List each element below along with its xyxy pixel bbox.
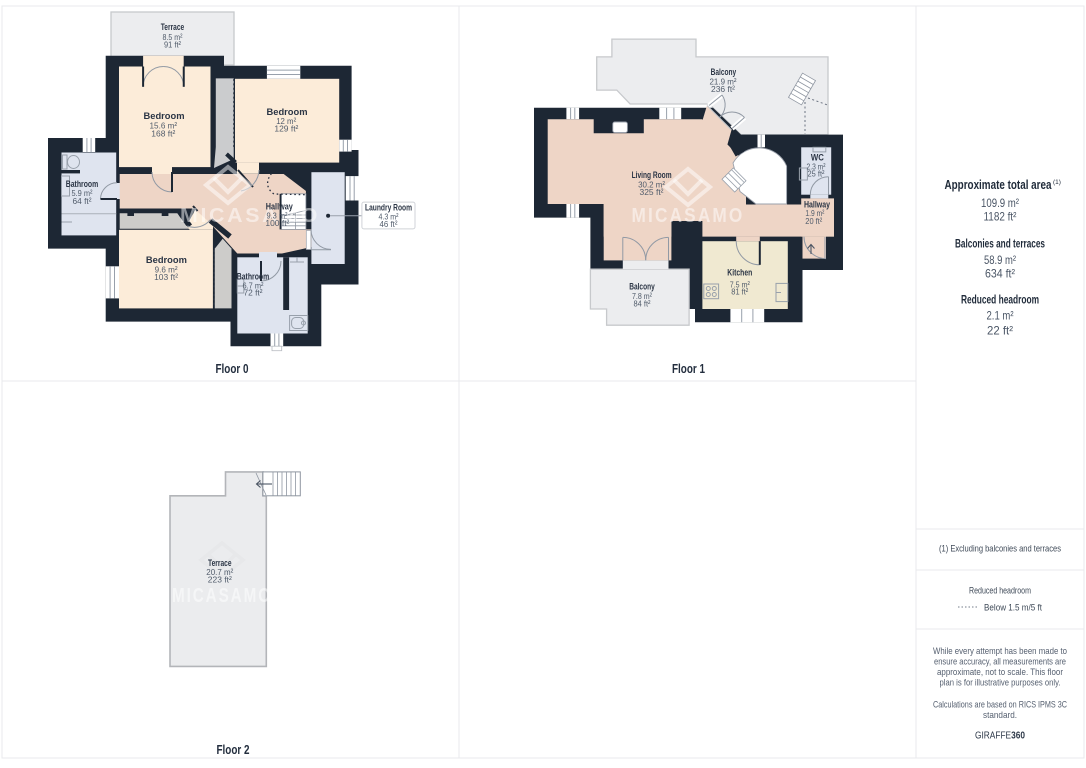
svg-text:25 ft²: 25 ft²	[808, 169, 825, 179]
svg-text:(1) Excluding balconies and te: (1) Excluding balconies and terraces	[939, 544, 1061, 554]
svg-text:(1): (1)	[1053, 179, 1061, 186]
svg-text:plan is for illustrative purpo: plan is for illustrative purposes only.	[940, 678, 1061, 688]
svg-text:58.9 m²: 58.9 m²	[984, 253, 1016, 267]
svg-text:20 ft²: 20 ft²	[805, 216, 822, 226]
svg-text:Floor 0: Floor 0	[216, 361, 249, 376]
svg-text:While every attempt has been m: While every attempt has been made to	[933, 646, 1067, 656]
svg-text:Below 1.5 m/5 ft: Below 1.5 m/5 ft	[984, 603, 1042, 614]
svg-text:Floor 2: Floor 2	[217, 742, 250, 757]
svg-text:Reduced headroom: Reduced headroom	[969, 586, 1031, 597]
svg-text:129 ft²: 129 ft²	[274, 124, 298, 134]
svg-text:22 ft²: 22 ft²	[987, 324, 1013, 338]
svg-text:72 ft²: 72 ft²	[244, 288, 263, 298]
svg-text:100 ft²: 100 ft²	[265, 218, 289, 228]
svg-text:approximate, not to scale. Thi: approximate, not to scale. This floor	[937, 667, 1063, 677]
svg-text:ensure accuracy, all measureme: ensure accuracy, all measurements are	[934, 657, 1066, 667]
svg-text:64 ft²: 64 ft²	[73, 196, 92, 206]
svg-text:MICASAMO: MICASAMO	[632, 205, 745, 227]
svg-text:Floor 1: Floor 1	[672, 361, 705, 376]
svg-text:84 ft²: 84 ft²	[634, 299, 651, 309]
svg-text:MICASAMO: MICASAMO	[172, 585, 272, 607]
svg-text:109.9 m²: 109.9 m²	[981, 196, 1019, 210]
svg-text:634 ft²: 634 ft²	[985, 267, 1015, 281]
svg-text:GIRAFFE360: GIRAFFE360	[975, 730, 1025, 742]
svg-text:223 ft²: 223 ft²	[208, 575, 232, 585]
svg-text:2.1 m²: 2.1 m²	[987, 309, 1014, 323]
svg-text:168 ft²: 168 ft²	[151, 128, 175, 138]
svg-text:103 ft²: 103 ft²	[154, 272, 178, 282]
svg-text:46 ft²: 46 ft²	[380, 219, 398, 229]
svg-text:Approximate total area: Approximate total area	[945, 178, 1053, 192]
svg-text:1182 ft²: 1182 ft²	[984, 210, 1017, 224]
svg-text:236 ft²: 236 ft²	[711, 84, 735, 94]
svg-text:81 ft²: 81 ft²	[731, 287, 748, 297]
svg-text:91 ft²: 91 ft²	[164, 40, 181, 50]
svg-text:standard.: standard.	[983, 710, 1017, 720]
svg-text:Balconies and terraces: Balconies and terraces	[955, 239, 1045, 251]
svg-text:Calculations are based on RICS: Calculations are based on RICS IPMS 3C	[933, 700, 1067, 710]
svg-text:Kitchen: Kitchen	[727, 267, 752, 278]
svg-text:MICASAMO: MICASAMO	[180, 205, 320, 227]
svg-text:Reduced headroom: Reduced headroom	[961, 295, 1039, 307]
svg-text:325 ft²: 325 ft²	[640, 187, 664, 197]
